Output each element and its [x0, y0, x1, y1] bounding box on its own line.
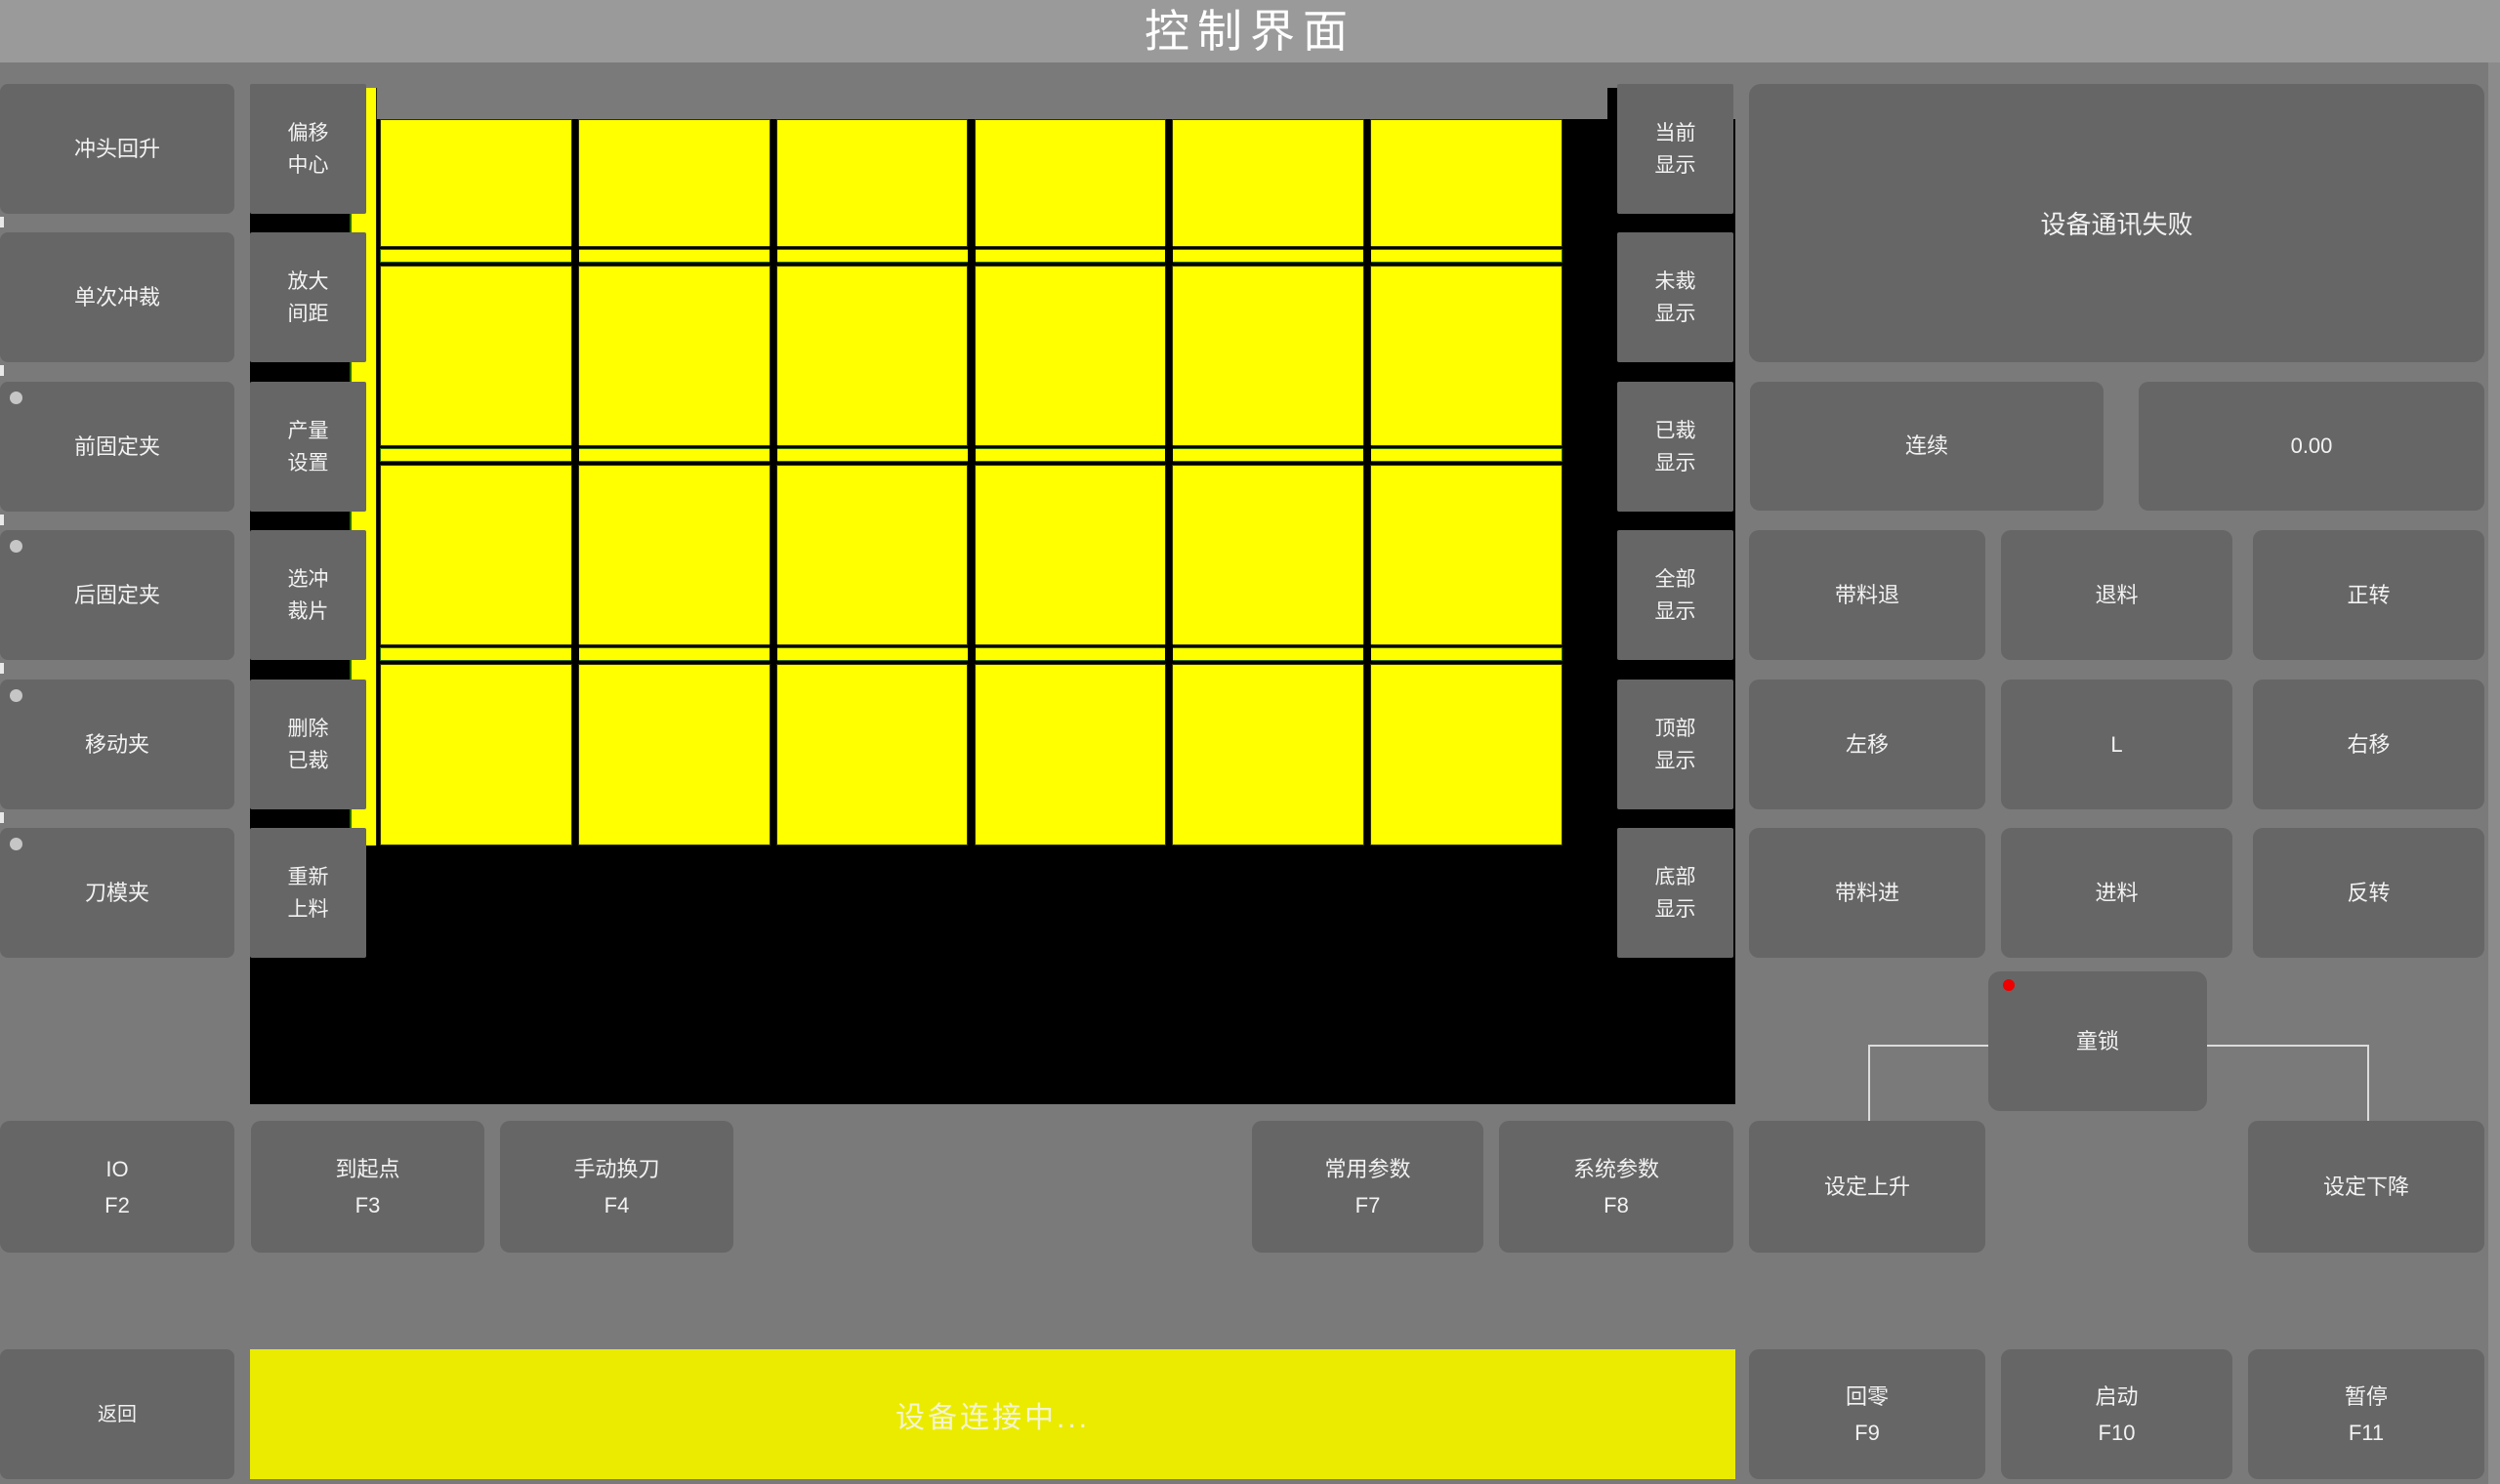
sheet-piece[interactable]: [975, 266, 1167, 446]
function-key-button-label: IO: [105, 1151, 128, 1187]
strip-junction-mark: [571, 246, 579, 266]
status-text: 设备连接中...: [896, 1393, 1090, 1436]
display-panel-button-label: 顶部: [1655, 713, 1696, 745]
function-key-button-label: F4: [604, 1187, 630, 1223]
left-panel-button[interactable]: 后固定夹: [0, 530, 234, 660]
jog-button[interactable]: 正转: [2253, 530, 2484, 660]
sheet-piece[interactable]: [578, 664, 771, 845]
jog-button[interactable]: 带料退: [1749, 530, 1985, 660]
sheet-piece[interactable]: [1172, 266, 1364, 446]
continuous-button[interactable]: 连续: [1750, 382, 2104, 511]
tool-panel-button[interactable]: 选冲裁片: [250, 530, 366, 660]
strip-junction-mark: [1165, 644, 1173, 664]
tool-panel-button-label: 选冲: [288, 563, 329, 596]
function-key-button-label: 设定上升: [1824, 1169, 1910, 1205]
display-panel-button-label: 显示: [1655, 596, 1696, 628]
left-panel-button[interactable]: 前固定夹: [0, 382, 234, 512]
function-key-button[interactable]: 系统参数F8: [1499, 1121, 1733, 1253]
canvas-notch: [1607, 88, 1617, 121]
display-panel-button[interactable]: 已裁显示: [1617, 382, 1733, 512]
child-lock-indicator-dot: [2003, 979, 2015, 991]
bottom-fkey-button-label: 启动: [2095, 1379, 2138, 1415]
function-key-button-label: F7: [1355, 1187, 1381, 1223]
left-panel-button-label: 冲头回升: [74, 133, 160, 166]
right-edge-strip: [2488, 62, 2500, 1484]
function-key-button-label: 手动换刀: [573, 1151, 659, 1187]
sheet-piece[interactable]: [578, 266, 771, 446]
display-panel-button-label: 显示: [1655, 893, 1696, 926]
display-panel-button-label: 显示: [1655, 298, 1696, 330]
display-panel-button-label: 已裁: [1655, 415, 1696, 447]
jog-button-label: 退料: [2095, 579, 2138, 612]
jog-button[interactable]: 反转: [2253, 828, 2484, 958]
tool-panel-button-label: 放大: [288, 266, 329, 298]
child-lock-button[interactable]: 童锁: [1988, 971, 2207, 1111]
tool-panel-button-label: 中心: [288, 149, 329, 182]
strip-junction-mark: [770, 246, 777, 266]
bracket-line-right-horizontal: [2207, 1045, 2367, 1047]
tool-panel-button-label: 设置: [288, 447, 329, 479]
left-panel-button[interactable]: 冲头回升: [0, 84, 234, 214]
strip-junction-mark: [968, 246, 976, 266]
status-bar: 设备连接中...: [250, 1349, 1735, 1479]
jog-button[interactable]: L: [2001, 680, 2232, 809]
function-key-button[interactable]: 手动换刀F4: [500, 1121, 733, 1253]
display-panel-button[interactable]: 当前显示: [1617, 84, 1733, 214]
jog-button-label: 进料: [2095, 877, 2138, 910]
tool-panel-button-label: 已裁: [288, 745, 329, 777]
bottom-fkey-button-label: F10: [2099, 1415, 2136, 1451]
sheet-piece[interactable]: [1172, 119, 1364, 247]
function-key-button-label: 设定下降: [2323, 1169, 2409, 1205]
title-bar: 控制界面: [0, 0, 2500, 62]
display-panel-button-label: 底部: [1655, 861, 1696, 893]
left-panel-button-label: 单次冲裁: [74, 281, 160, 314]
function-key-button-label: F2: [104, 1187, 130, 1223]
display-panel-button[interactable]: 底部显示: [1617, 828, 1733, 958]
sheet-piece[interactable]: [380, 119, 572, 247]
state-indicator-dot: [10, 392, 22, 404]
display-panel-button[interactable]: 全部显示: [1617, 530, 1733, 660]
back-button[interactable]: 返回: [0, 1349, 234, 1479]
bottom-fkey-button[interactable]: 暂停F11: [2248, 1349, 2484, 1479]
function-key-button[interactable]: 设定上升: [1749, 1121, 1985, 1253]
strip-junction-mark: [1165, 246, 1173, 266]
function-key-button-label: F3: [355, 1187, 381, 1223]
jog-button-label: 反转: [2347, 877, 2390, 910]
jog-button[interactable]: 退料: [2001, 530, 2232, 660]
left-panel-button-label: 移动夹: [85, 728, 149, 762]
strip-junction-mark: [571, 445, 579, 465]
function-key-button-label: 系统参数: [1573, 1151, 1659, 1187]
sheet-piece[interactable]: [1370, 664, 1562, 845]
function-key-button[interactable]: 设定下降: [2248, 1121, 2484, 1253]
sheet-piece[interactable]: [776, 119, 969, 247]
jog-button-label: 右移: [2347, 728, 2390, 762]
state-indicator-dot: [10, 838, 22, 850]
display-panel-button-label: 显示: [1655, 745, 1696, 777]
sheet-piece[interactable]: [380, 465, 572, 645]
sheet-piece[interactable]: [380, 664, 572, 845]
bracket-line-right-vertical: [2367, 1045, 2369, 1121]
state-indicator-dot: [10, 540, 22, 553]
sheet-piece[interactable]: [776, 266, 969, 446]
strip-junction-mark: [1363, 246, 1371, 266]
display-panel-button-label: 显示: [1655, 447, 1696, 479]
sheet-piece[interactable]: [975, 664, 1167, 845]
tool-panel-button[interactable]: 重新上料: [250, 828, 366, 958]
left-panel-button-label: 前固定夹: [74, 431, 160, 464]
state-indicator-dot: [10, 689, 22, 702]
comm-status-text: 设备通讯失败: [2040, 205, 2192, 241]
sheet-piece[interactable]: [1370, 465, 1562, 645]
tool-panel-button-label: 上料: [288, 893, 329, 926]
tool-panel-button-label: 重新: [288, 861, 329, 893]
edge-tick: [0, 663, 4, 674]
edge-tick: [0, 812, 4, 823]
tool-panel-button[interactable]: 删除已裁: [250, 680, 366, 809]
sheet-piece[interactable]: [776, 664, 969, 845]
bottom-fkey-button[interactable]: 启动F10: [2001, 1349, 2232, 1479]
strip-junction-mark: [1165, 445, 1173, 465]
tool-panel-button[interactable]: 偏移中心: [250, 84, 366, 214]
strip-junction-mark: [968, 644, 976, 664]
strip-junction-mark: [770, 644, 777, 664]
tool-panel-button-label: 删除: [288, 713, 329, 745]
left-panel-button[interactable]: 移动夹: [0, 680, 234, 809]
function-key-button-label: 到起点: [335, 1151, 399, 1187]
function-key-button[interactable]: IOF2: [0, 1121, 234, 1253]
bracket-line-left-horizontal: [1868, 1045, 1988, 1047]
bottom-fkey-button-label: F9: [1854, 1415, 1880, 1451]
strip-junction-mark: [1363, 644, 1371, 664]
display-panel-button[interactable]: 未裁显示: [1617, 232, 1733, 362]
sheet-piece[interactable]: [975, 465, 1167, 645]
function-key-button[interactable]: 到起点F3: [251, 1121, 484, 1253]
edge-tick: [0, 515, 4, 525]
child-lock-label: 童锁: [2076, 1025, 2119, 1058]
sheet-piece[interactable]: [380, 266, 572, 446]
jog-button[interactable]: 带料进: [1749, 828, 1985, 958]
display-panel-button-label: 全部: [1655, 563, 1696, 596]
bottom-fkey-button-label: F11: [2349, 1415, 2384, 1451]
strip-junction-mark: [770, 445, 777, 465]
display-panel-button[interactable]: 顶部显示: [1617, 680, 1733, 809]
function-key-button-label: 常用参数: [1324, 1151, 1410, 1187]
sheet-piece[interactable]: [578, 119, 771, 247]
display-panel-button-label: 显示: [1655, 149, 1696, 182]
jog-button-label: L: [2110, 728, 2122, 762]
value-display[interactable]: 0.00: [2139, 382, 2484, 511]
bottom-fkey-button-label: 回零: [1846, 1379, 1889, 1415]
sheet-piece[interactable]: [1172, 664, 1364, 845]
jog-button-label: 带料进: [1835, 877, 1899, 910]
bottom-fkey-button-label: 暂停: [2345, 1379, 2388, 1415]
strip-junction-mark: [968, 445, 976, 465]
jog-button-label: 正转: [2347, 579, 2390, 612]
jog-button[interactable]: 左移: [1749, 680, 1985, 809]
tool-panel-button[interactable]: 放大间距: [250, 232, 366, 362]
jog-button-label: 带料退: [1835, 579, 1899, 612]
edge-tick: [0, 217, 4, 227]
jog-button[interactable]: 右移: [2253, 680, 2484, 809]
control-screen: { "title": "控制界面", "left_panel": { "butt…: [0, 0, 2500, 1484]
sheet-piece[interactable]: [578, 465, 771, 645]
strip-junction-mark: [1363, 445, 1371, 465]
machine-canvas: [250, 119, 1735, 1104]
left-panel-button[interactable]: 单次冲裁: [0, 232, 234, 362]
left-panel-button[interactable]: 刀模夹: [0, 828, 234, 958]
jog-button-label: 左移: [1846, 728, 1889, 762]
jog-button[interactable]: 进料: [2001, 828, 2232, 958]
bottom-fkey-button[interactable]: 回零F9: [1749, 1349, 1985, 1479]
sheet-piece[interactable]: [975, 119, 1167, 247]
tool-panel-button-label: 产量: [288, 415, 329, 447]
sheet-piece[interactable]: [1370, 119, 1562, 247]
function-key-button-label: F8: [1604, 1187, 1629, 1223]
display-panel-button-label: 当前: [1655, 117, 1696, 149]
sheet-piece[interactable]: [776, 465, 969, 645]
tool-panel-button-label: 裁片: [288, 596, 329, 628]
sheet-piece[interactable]: [1370, 266, 1562, 446]
tool-panel-button-label: 偏移: [288, 117, 329, 149]
left-panel-button-label: 刀模夹: [85, 877, 149, 910]
tool-panel-button[interactable]: 产量设置: [250, 382, 366, 512]
sheet-piece[interactable]: [1172, 465, 1364, 645]
comm-status-box: 设备通讯失败: [1749, 84, 2484, 362]
left-panel-button-label: 后固定夹: [74, 579, 160, 612]
page-title: 控制界面: [1145, 2, 1355, 61]
edge-tick: [0, 365, 4, 376]
display-panel-button-label: 未裁: [1655, 266, 1696, 298]
function-key-button[interactable]: 常用参数F7: [1252, 1121, 1483, 1253]
bracket-line-left-vertical: [1868, 1045, 1870, 1121]
tool-panel-button-label: 间距: [288, 298, 329, 330]
strip-junction-mark: [571, 644, 579, 664]
